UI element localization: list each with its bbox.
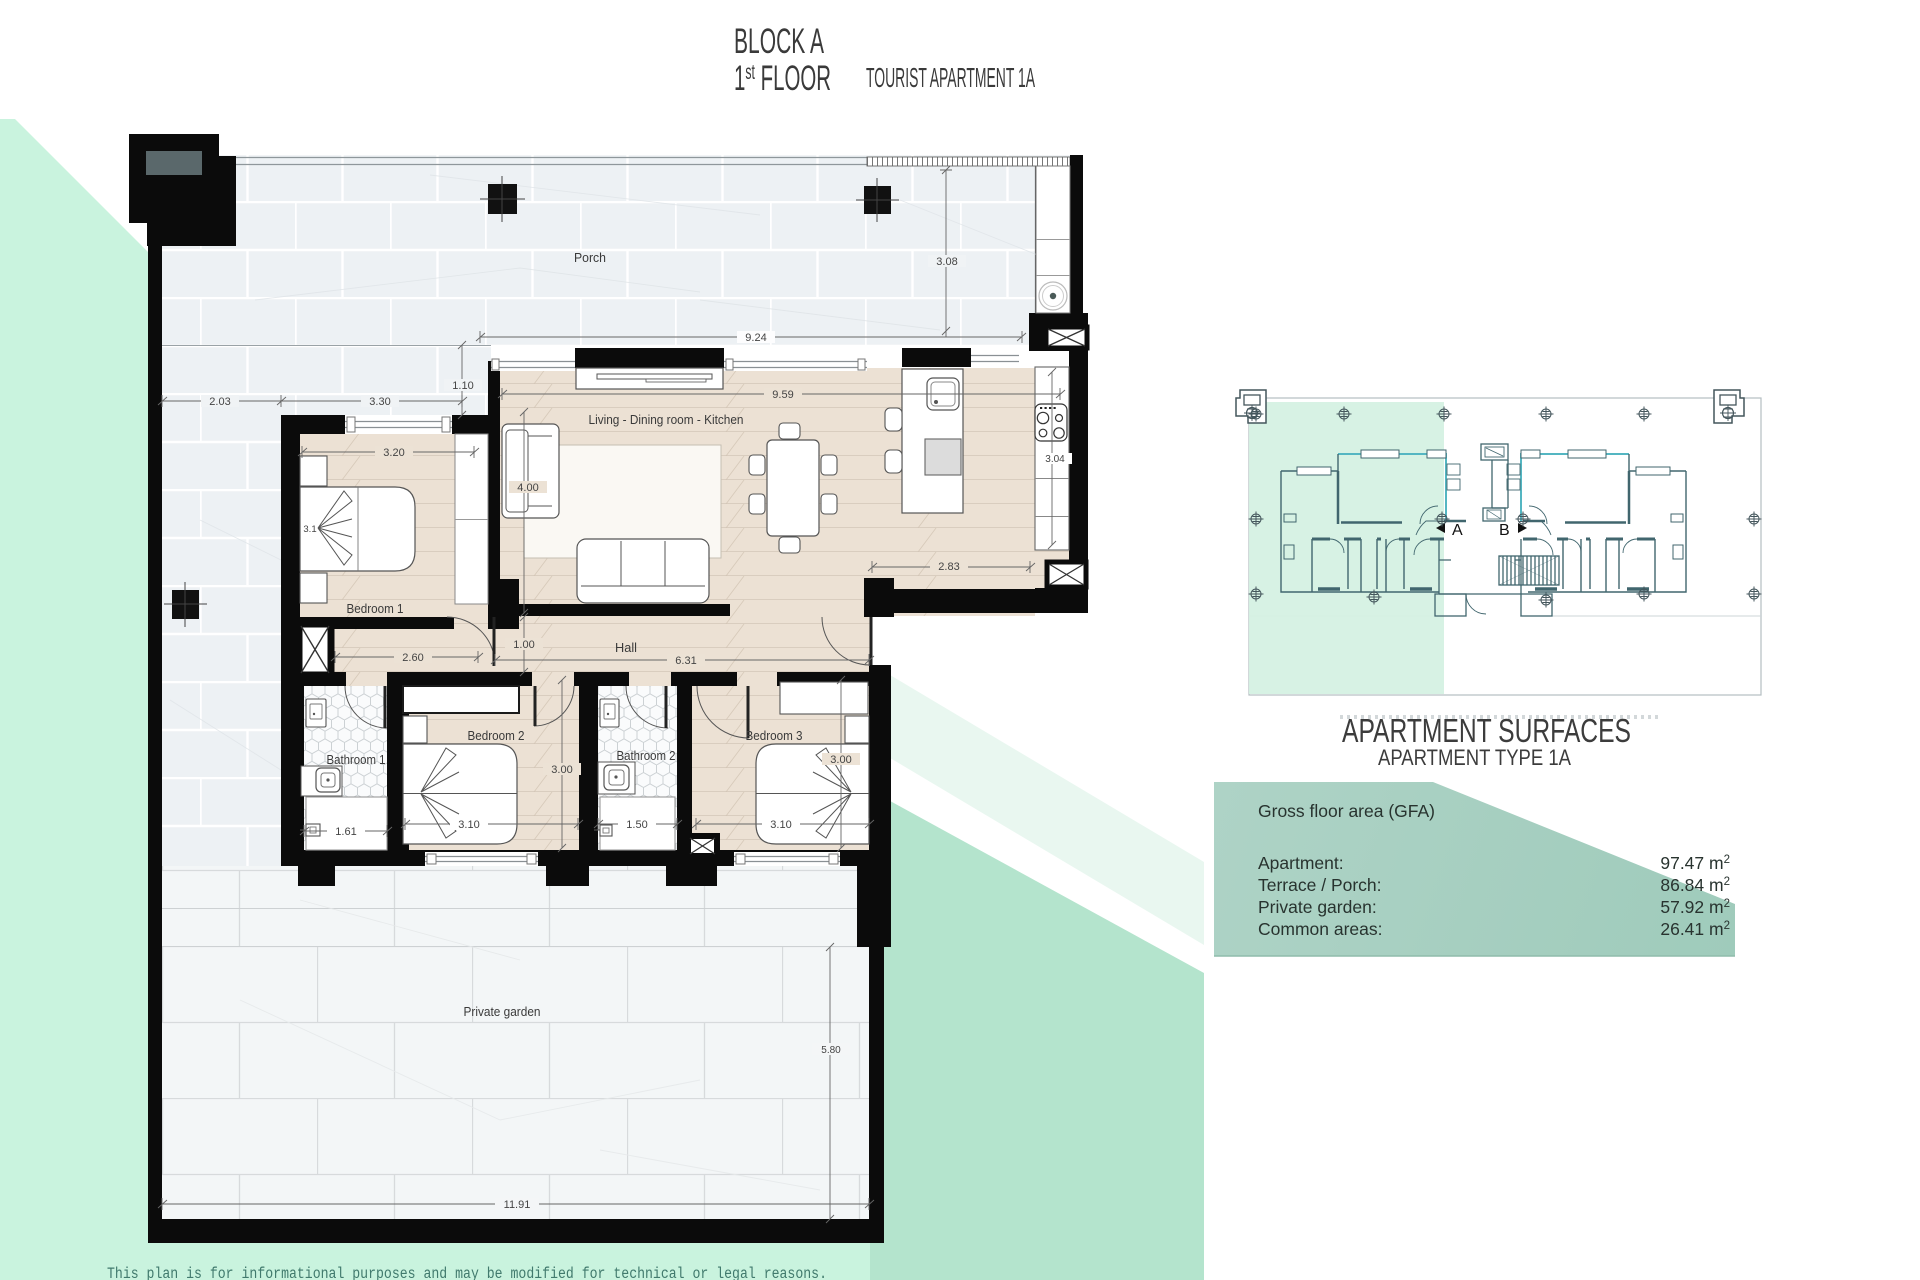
svg-text:2.03: 2.03 (209, 396, 230, 408)
svg-text:97.47 m2: 97.47 m2 (1660, 853, 1730, 873)
svg-text:5.80: 5.80 (821, 1045, 841, 1056)
svg-text:Bathroom 1: Bathroom 1 (327, 753, 386, 767)
svg-text:3.1: 3.1 (303, 524, 316, 535)
svg-text:3.00: 3.00 (551, 764, 572, 776)
svg-text:Bedroom 1: Bedroom 1 (347, 602, 404, 616)
svg-text:3.20: 3.20 (383, 447, 404, 459)
svg-text:Hall: Hall (615, 641, 637, 655)
svg-text:3.08: 3.08 (936, 256, 957, 268)
svg-text:57.92 m2: 57.92 m2 (1660, 897, 1730, 917)
svg-text:4.00: 4.00 (517, 482, 538, 494)
svg-text:Bathroom 2: Bathroom 2 (617, 749, 676, 763)
svg-text:1.50: 1.50 (626, 819, 647, 831)
svg-text:Private garden: Private garden (464, 1005, 541, 1019)
svg-text:A: A (1452, 522, 1463, 539)
svg-text:Private garden:: Private garden: (1258, 897, 1377, 917)
svg-text:APARTMENT TYPE 1A: APARTMENT TYPE 1A (1378, 745, 1571, 770)
svg-text:Terrace / Porch:: Terrace / Porch: (1258, 875, 1382, 895)
svg-text:3.00: 3.00 (830, 754, 851, 766)
svg-text:Common areas:: Common areas: (1258, 919, 1383, 939)
svg-text:2.83: 2.83 (938, 561, 959, 573)
svg-text:BLOCK A: BLOCK A (734, 22, 824, 61)
svg-text:86.84 m2: 86.84 m2 (1660, 875, 1730, 895)
svg-text:Living - Dining room - Kitchen: Living - Dining room - Kitchen (589, 413, 744, 427)
svg-text:1.00: 1.00 (513, 639, 534, 651)
svg-text:This plan is for informational: This plan is for informational purposes … (107, 1265, 827, 1280)
svg-text:3.04: 3.04 (1045, 454, 1065, 465)
svg-text:Gross floor area (GFA): Gross floor area (GFA) (1258, 801, 1435, 821)
svg-text:11.91: 11.91 (504, 1199, 531, 1211)
svg-text:26.41 m2: 26.41 m2 (1660, 919, 1730, 939)
svg-text:2.60: 2.60 (402, 652, 423, 664)
svg-text:1.10: 1.10 (452, 380, 473, 392)
svg-text:1.61: 1.61 (335, 826, 356, 838)
svg-text:Bedroom 2: Bedroom 2 (468, 729, 525, 743)
svg-text:TOURIST APARTMENT 1A: TOURIST APARTMENT 1A (866, 62, 1035, 93)
svg-text:Apartment:: Apartment: (1258, 853, 1344, 873)
svg-text:APARTMENT SURFACES: APARTMENT SURFACES (1342, 712, 1631, 749)
svg-text:9.59: 9.59 (772, 389, 793, 401)
svg-text:9.24: 9.24 (745, 332, 766, 344)
svg-text:Porch: Porch (574, 251, 606, 265)
svg-text:Bedroom 3: Bedroom 3 (746, 729, 803, 743)
svg-text:B: B (1499, 522, 1510, 539)
svg-text:3.30: 3.30 (369, 396, 390, 408)
svg-text:3.10: 3.10 (770, 819, 791, 831)
svg-text:3.10: 3.10 (458, 819, 479, 831)
svg-text:6.31: 6.31 (675, 655, 696, 667)
